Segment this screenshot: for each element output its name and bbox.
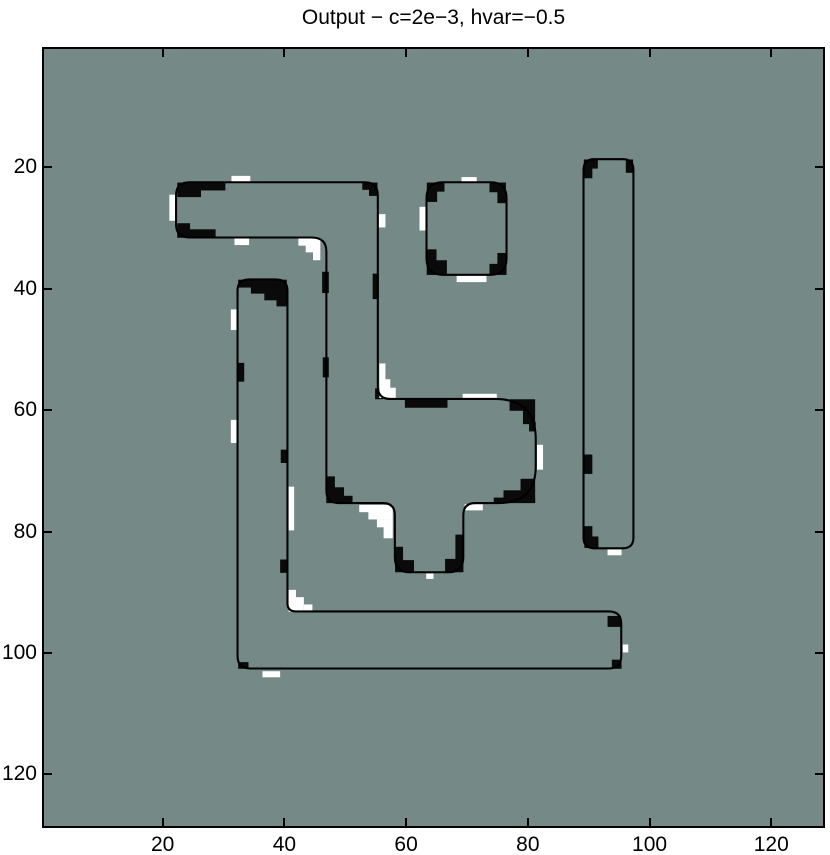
white-pixel-patch <box>390 388 396 398</box>
x-tick-mark <box>527 818 529 826</box>
white-pixel-patch <box>298 238 320 245</box>
x-tick-mark-top <box>527 49 529 57</box>
y-tick-mark-right <box>815 652 823 654</box>
y-tick-mark-right <box>815 288 823 290</box>
black-pixel-patch <box>427 260 447 275</box>
y-tick-mark-right <box>815 166 823 168</box>
white-pixel-patch <box>608 549 622 555</box>
y-axis-tick-label: 60 <box>0 399 37 421</box>
plot-area <box>42 47 825 828</box>
y-axis-tick-label: 20 <box>0 156 37 178</box>
black-pixel-patch <box>264 293 287 300</box>
contour-right-tall-rect <box>584 159 634 548</box>
y-tick-mark-right <box>815 409 823 411</box>
y-axis-tick-label: 100 <box>0 642 37 664</box>
white-pixel-patch <box>379 363 385 398</box>
white-pixel-patch <box>623 644 628 652</box>
y-tick-mark <box>44 652 52 654</box>
y-axis-tick-label: 40 <box>0 278 37 300</box>
white-pixel-patch <box>377 519 393 527</box>
black-pixel-patch <box>584 167 593 179</box>
white-pixel-patch <box>306 245 321 252</box>
white-pixel-patch <box>231 309 237 330</box>
white-pixel-patch <box>231 420 237 443</box>
white-pixel-patch <box>262 671 280 677</box>
x-tick-mark-top <box>283 49 285 57</box>
white-pixel-patch <box>296 597 304 612</box>
y-tick-mark <box>44 409 52 411</box>
white-pixel-patch <box>289 487 294 531</box>
x-tick-mark-top <box>405 49 407 57</box>
x-axis-tick-label: 20 <box>133 834 193 855</box>
black-pixel-patch <box>276 300 286 307</box>
matlab-figure: Output − c=2e−3, hvar=−0.5 2040608010012… <box>0 0 830 855</box>
black-pixel-patch <box>280 560 287 573</box>
x-axis-tick-label: 120 <box>741 834 801 855</box>
y-tick-mark <box>44 166 52 168</box>
x-tick-mark <box>405 818 407 826</box>
plot-title: Output − c=2e−3, hvar=−0.5 <box>42 5 825 31</box>
y-tick-mark-right <box>815 773 823 775</box>
x-axis-tick-label: 100 <box>620 834 680 855</box>
black-pixel-patch <box>405 399 448 407</box>
x-axis-tick-label: 80 <box>498 834 558 855</box>
white-pixel-patch <box>420 207 427 231</box>
white-pixel-patch <box>368 512 392 520</box>
x-tick-mark-top <box>649 49 651 57</box>
x-axis-tick-label: 60 <box>376 834 436 855</box>
white-pixel-patch <box>379 214 386 227</box>
black-pixel-patch <box>608 616 621 627</box>
white-pixel-patch <box>384 527 393 539</box>
white-pixel-patch <box>359 505 392 512</box>
x-tick-mark <box>770 818 772 826</box>
x-tick-mark <box>649 818 651 826</box>
y-axis-tick-label: 120 <box>0 763 37 785</box>
white-pixel-patch <box>313 252 320 260</box>
white-pixel-patch <box>234 238 249 245</box>
white-pixel-patch <box>426 573 433 578</box>
x-tick-mark-top <box>162 49 164 57</box>
y-tick-mark <box>44 531 52 533</box>
x-tick-mark-top <box>770 49 772 57</box>
contour-bar-hook-blob-funnel <box>176 182 536 572</box>
y-tick-mark-right <box>815 531 823 533</box>
y-axis-tick-label: 80 <box>0 521 37 543</box>
white-pixel-patch <box>385 379 390 398</box>
white-pixel-patch <box>537 445 543 470</box>
black-pixel-patch <box>251 286 287 293</box>
black-pixel-patch <box>584 454 593 473</box>
white-pixel-patch <box>457 275 487 282</box>
x-tick-mark <box>283 818 285 826</box>
y-tick-mark <box>44 288 52 290</box>
x-axis-tick-label: 40 <box>254 834 314 855</box>
y-tick-mark <box>44 773 52 775</box>
black-pixel-patch <box>177 189 201 197</box>
x-tick-mark <box>162 818 164 826</box>
segmentation-image <box>44 49 823 826</box>
